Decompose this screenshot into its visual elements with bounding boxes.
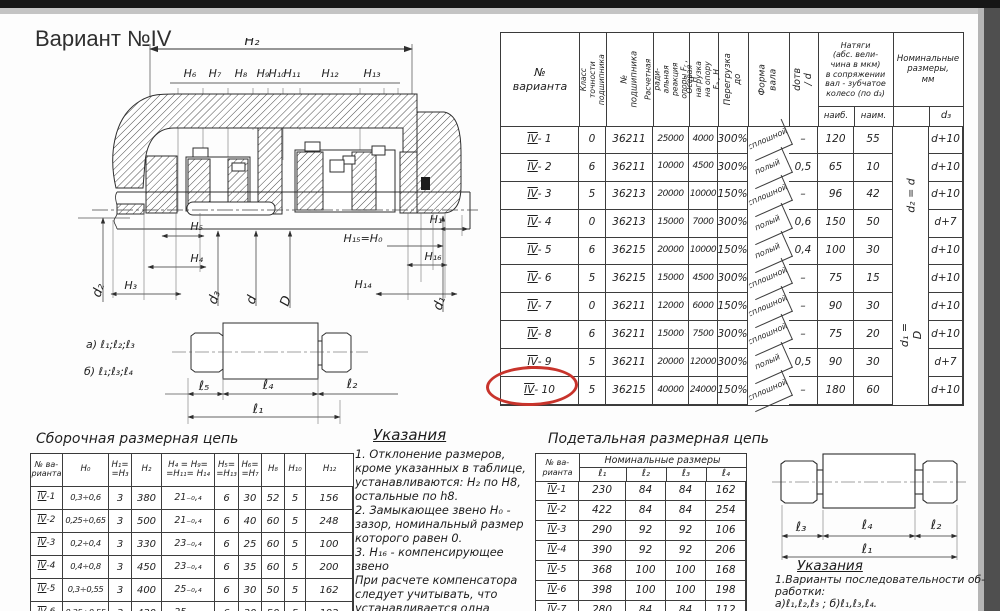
table-cell: d+7	[929, 210, 963, 238]
scan-border-top-gray	[0, 8, 1000, 14]
scan-border-right	[984, 8, 1000, 611]
scan-border-top	[0, 0, 1000, 8]
dim-label-l2: ℓ₂	[346, 377, 358, 392]
table-cell: IV-1	[536, 481, 579, 501]
table-cell: 40000	[653, 377, 689, 405]
table-cell: d+10	[929, 154, 963, 182]
table-cell: IV-4	[31, 556, 63, 579]
table-cell: 330	[132, 533, 162, 556]
table-cell: 5	[285, 487, 306, 510]
dim-label-l4: ℓ₄	[861, 518, 873, 533]
dim-label-h8: H₈	[235, 67, 248, 80]
table-cell: 380	[132, 487, 162, 510]
note-line: 3. Н₁₆ - компенсирующее звено	[355, 546, 535, 574]
table-cell: 7000	[689, 210, 718, 238]
table-cell: 3	[109, 487, 132, 510]
table-cell: 4500	[689, 265, 718, 293]
table-cell: 75	[818, 321, 854, 349]
note-line: следует учитывать, что	[355, 588, 535, 602]
table-cell: 90	[818, 293, 854, 321]
table-cell: 150%	[718, 182, 748, 210]
header-cell: H₆= =H₇	[239, 454, 262, 487]
header-l2: ℓ₂	[626, 467, 667, 482]
table-cell: IV - 8	[501, 321, 579, 349]
detail-table-header: № ва- рианта Номинальные размеры ℓ₁ ℓ₂ ℓ…	[536, 454, 746, 481]
assembly-drawing: H₂ H₆ H₇ H₈ H₉ H₁₀ H₁₁ H₁₂ H₁₃ H₅ H₄ H₃ …	[30, 38, 490, 436]
table-cell: 30	[239, 602, 262, 611]
table-cell: 30	[854, 238, 893, 266]
table-cell: 84	[666, 601, 706, 611]
table-cell: –	[789, 182, 818, 210]
table-cell: 6	[215, 602, 239, 611]
table-cell: 50	[262, 602, 285, 611]
machining-notes: Указания 1.Варианты последовательности о…	[775, 560, 987, 610]
table-cell: d+10	[929, 182, 963, 210]
table-cell: d+10	[929, 238, 963, 266]
table-cell: 50	[854, 210, 893, 238]
table-cell: 5	[285, 533, 306, 556]
table-cell: 100	[626, 581, 666, 601]
table-cell: IV - 2	[501, 154, 579, 182]
note-line: кроме указанных в таблице,	[355, 462, 535, 476]
table-cell: d+10	[929, 377, 963, 405]
table-cell: –	[789, 126, 818, 154]
header-cell: H₁₀	[285, 454, 306, 487]
dim-label-h5: H₅	[190, 220, 203, 233]
table-cell: 90	[818, 349, 854, 377]
table-cell: 10000	[653, 154, 689, 182]
table-cell: 3	[109, 602, 132, 611]
table-cell: 5	[579, 182, 606, 210]
instructions-title: Указания	[373, 428, 535, 442]
dim-label-h6: H₆	[184, 67, 197, 80]
table-cell: 52	[262, 487, 285, 510]
dim-label-l3: ℓ₃	[795, 520, 807, 535]
table-cell: –	[789, 293, 818, 321]
table-cell: 300%	[718, 210, 748, 238]
table-cell: 206	[706, 541, 746, 561]
table-cell: 84	[626, 601, 666, 611]
note-line: устанавливается одна	[355, 602, 535, 611]
table-cell: 162	[306, 579, 353, 602]
table-cell: 254	[706, 501, 746, 521]
table-cell: 192	[306, 602, 353, 611]
dia-label-d2: d₂	[90, 282, 108, 299]
table-cell: 6	[215, 579, 239, 602]
table-cell: 60	[262, 533, 285, 556]
dim-label-l5: ℓ₅	[198, 379, 210, 394]
note-line: остальные по h8.	[355, 490, 535, 504]
assembly-table-title: Сборочная размерная цепь	[36, 431, 238, 447]
table-cell: 36211	[606, 126, 653, 154]
table-cell: 30	[854, 349, 893, 377]
shaft-drawing: ℓ₃ ℓ₄ ℓ₂ ℓ₁	[770, 438, 970, 562]
header-cell: H₀	[63, 454, 109, 487]
table-cell: 15000	[653, 210, 689, 238]
table-cell: 6	[579, 321, 606, 349]
table-cell: 100	[666, 561, 706, 581]
table-cell: IV-2	[31, 510, 63, 533]
table-cell: IV - 1	[501, 126, 579, 154]
dim-label-h2: H₂	[245, 38, 260, 49]
table-cell: d+7	[929, 349, 963, 377]
table-cell: 112	[706, 601, 746, 611]
note-line: которого равен 0.	[355, 532, 535, 546]
table-cell: 5	[579, 265, 606, 293]
scanned-page: Вариант №IV	[0, 0, 1000, 611]
table-cell: 3	[109, 579, 132, 602]
table-cell: 92	[666, 541, 706, 561]
header-axial-load: Осевая нагрузка на опору Fₐ , Н	[689, 33, 719, 127]
header-accuracy-class: Класс точности подшипника	[579, 33, 607, 127]
dim-label-l4: ℓ₄	[262, 378, 274, 393]
table-cell: 156	[306, 487, 353, 510]
header-nominal-sizes: Номинальные размеры	[579, 454, 746, 468]
table-cell: 6	[579, 154, 606, 182]
dim-label-h4: H₄	[190, 252, 203, 265]
detail-table-title: Подетальная размерная цепь	[548, 431, 769, 447]
table-cell: 15000	[653, 321, 689, 349]
table-cell: 25000	[653, 126, 689, 154]
header-naib: наиб.	[818, 106, 855, 127]
table-cell: 0,5	[789, 154, 818, 182]
table-cell: 100	[818, 238, 854, 266]
table-cell: 30	[239, 487, 262, 510]
main-table-header: № варианта Класс точности подшипника № п…	[501, 33, 963, 126]
dim-label-l1: ℓ₁	[252, 402, 264, 417]
table-cell: IV - 4	[501, 210, 579, 238]
header-d3: d₃	[929, 106, 963, 127]
table-cell: 36211	[606, 349, 653, 377]
table-cell: 12000	[689, 349, 718, 377]
table-cell: 75	[818, 265, 854, 293]
table-cell: 0,3÷0,55	[63, 579, 109, 602]
table-cell: 0,25÷0,65	[63, 510, 109, 533]
table-cell: 20000	[653, 182, 689, 210]
table-cell: 36215	[606, 238, 653, 266]
table-cell: 198	[706, 581, 746, 601]
table-cell: 36213	[606, 210, 653, 238]
dia-label-d3: d₃	[206, 289, 224, 306]
table-cell: d+10	[929, 265, 963, 293]
header-cell: H₈	[262, 454, 285, 487]
note-line: устанавливаются: H₂ по H8,	[355, 476, 535, 490]
table-cell: 150%	[718, 377, 748, 405]
table-cell: 0,6	[789, 210, 818, 238]
table-cell: 368	[579, 561, 626, 581]
note-line: 2. Замыкающее звено H₀ -	[355, 504, 535, 518]
table-cell: 300%	[718, 349, 748, 377]
merged-cell-d2-equals-d: d₂ = d	[893, 126, 929, 266]
table-cell: 422	[579, 501, 626, 521]
header-naim: наим.	[854, 106, 894, 127]
table-cell: 15000	[653, 265, 689, 293]
assembly-table-header: № ва- рианта H₀ H₁= =H₃ H₂ H₄ = H₉= =H₁₁…	[31, 454, 353, 487]
table-cell: IV - 7	[501, 293, 579, 321]
table-cell: 150%	[718, 293, 748, 321]
sequence-note-a: а) ℓ₁;ℓ₂;ℓ₃	[86, 338, 135, 351]
table-cell: 10000	[689, 238, 718, 266]
dim-label-h7: H₇	[209, 67, 222, 80]
table-cell: 6000	[689, 293, 718, 321]
table-cell: 92	[626, 541, 666, 561]
main-spec-table: № варианта Класс точности подшипника № п…	[500, 32, 964, 406]
table-cell: IV-3	[31, 533, 63, 556]
header-empty-subcell	[893, 106, 930, 127]
table-cell: 300%	[718, 126, 748, 154]
table-cell: IV-5	[31, 579, 63, 602]
dia-label-D: D	[278, 294, 295, 308]
table-cell: 6	[215, 556, 239, 579]
dim-label-l2: ℓ₂	[930, 518, 942, 533]
dia-label-d: d	[244, 293, 261, 306]
table-cell: 7500	[689, 321, 718, 349]
table-cell: 200	[306, 556, 353, 579]
table-cell: 20000	[653, 349, 689, 377]
table-cell: 84	[666, 501, 706, 521]
table-cell: 5	[285, 510, 306, 533]
dim-label-h13: H₁₃	[363, 67, 381, 80]
table-cell: 20000	[653, 238, 689, 266]
table-cell: 24000	[689, 377, 718, 405]
header-shaft-form: Форма вала	[748, 33, 790, 127]
header-cell: H₂	[132, 454, 162, 487]
table-cell: 84	[666, 481, 706, 501]
table-cell: 390	[579, 541, 626, 561]
table-cell: 150%	[718, 238, 748, 266]
table-cell: 5	[285, 556, 306, 579]
dim-label-h1: H₁	[430, 213, 443, 226]
table-cell: 84	[626, 501, 666, 521]
table-cell: 168	[706, 561, 746, 581]
table-cell: 0,3÷0,6	[63, 487, 109, 510]
table-cell: 5	[285, 579, 306, 602]
table-cell: 0	[579, 126, 606, 154]
merged-cell-d1-equals-D: d₁ = D	[893, 266, 929, 406]
header-l4: ℓ₄	[706, 467, 746, 482]
note-line: При расчете компенсатора	[355, 574, 535, 588]
note-line: а)ℓ₁,ℓ₂,ℓ₃ ; б)ℓ₁,ℓ₃,ℓ₄.	[775, 598, 987, 610]
table-cell: 36211	[606, 321, 653, 349]
table-cell: 5	[285, 602, 306, 611]
table-cell: 4000	[689, 126, 718, 154]
header-dotv-d: dотв / d	[789, 33, 819, 127]
note-line: зазор, номинальный размер	[355, 518, 535, 532]
header-cell: № ва- рианта	[31, 454, 63, 487]
table-cell: 6	[215, 510, 239, 533]
table-cell: 35	[239, 556, 262, 579]
header-nominal-sizes: Номинальные размеры, мм	[893, 33, 963, 107]
sequence-note-b: б) ℓ₁;ℓ₃;ℓ₄	[84, 365, 133, 378]
table-cell: 150	[818, 210, 854, 238]
dim-label-h16: H₁₆	[424, 250, 442, 263]
table-cell: 10000	[689, 182, 718, 210]
detail-chain-table: № ва- рианта Номинальные размеры ℓ₁ ℓ₂ ℓ…	[535, 453, 747, 611]
table-cell: 42	[854, 182, 893, 210]
table-cell: –	[789, 321, 818, 349]
table-cell: 5	[579, 349, 606, 377]
header-interference: Натяги (абс. вели- чина в мкм) в сопряже…	[818, 33, 894, 107]
table-cell: 10	[854, 154, 893, 182]
dim-label-h15-h0: H₁₅=H₀	[344, 232, 384, 245]
table-cell: 0,25÷0,55	[63, 602, 109, 611]
table-cell: 162	[706, 481, 746, 501]
table-cell: IV - 6	[501, 265, 579, 293]
table-cell: 0,2÷0,4	[63, 533, 109, 556]
table-cell: 3	[109, 556, 132, 579]
dim-label-h12: H₁₂	[321, 67, 339, 80]
table-cell: 300%	[718, 265, 748, 293]
table-cell: 6	[579, 238, 606, 266]
table-cell: 21₋₀,₄	[162, 487, 215, 510]
table-cell: 290	[579, 521, 626, 541]
table-cell: 40	[239, 510, 262, 533]
table-cell: 230	[579, 481, 626, 501]
table-cell: IV-2	[536, 501, 579, 521]
table-cell: 430	[132, 602, 162, 611]
header-cell: H₁= =H₃	[109, 454, 132, 487]
table-cell: 23₋₀,₄	[162, 556, 215, 579]
dim-label-h3: H₃	[124, 279, 137, 292]
table-cell: 400	[132, 579, 162, 602]
table-cell: IV-5	[536, 561, 579, 581]
note-line: 1. Отклонение размеров,	[355, 448, 535, 462]
table-cell: 100	[626, 561, 666, 581]
table-cell: 6	[215, 487, 239, 510]
table-cell: d+10	[929, 293, 963, 321]
table-cell: 50	[262, 579, 285, 602]
table-cell: IV - 5	[501, 238, 579, 266]
table-cell: 6	[215, 533, 239, 556]
detail-table-body: IV-12308484162IV-24228484254IV-329092921…	[536, 481, 746, 611]
table-cell: 36215	[606, 265, 653, 293]
assembly-table-body: IV-10,3÷0,6338021₋₀,₄630525156IV-20,25÷0…	[31, 487, 353, 611]
table-cell: 5	[579, 377, 606, 405]
table-cell: 248	[306, 510, 353, 533]
table-cell: 100	[306, 533, 353, 556]
header-variant: № варианта	[501, 33, 580, 127]
table-cell: 25	[239, 533, 262, 556]
header-l1: ℓ₁	[579, 467, 627, 482]
header-l3: ℓ₃	[666, 467, 707, 482]
table-cell: IV-4	[536, 541, 579, 561]
assembly-chain-table: № ва- рианта H₀ H₁= =H₃ H₂ H₄ = H₉= =H₁₁…	[30, 453, 354, 611]
table-cell: 21₋₀,₄	[162, 510, 215, 533]
table-cell: 36211	[606, 293, 653, 321]
table-cell: 60	[262, 556, 285, 579]
table-cell: IV-6	[31, 602, 63, 611]
header-cell: H₄ = H₉= =H₁₁= H₁₄	[162, 454, 215, 487]
table-cell: 15	[854, 265, 893, 293]
table-cell: 25₋₀,₄	[162, 602, 215, 611]
table-cell: d+10	[929, 126, 963, 154]
table-cell: 84	[626, 481, 666, 501]
table-cell: 25₋₀,₄	[162, 579, 215, 602]
table-cell: 60	[854, 377, 893, 405]
dia-label-d1: d₁	[431, 295, 449, 312]
dim-label-h14: H₁₄	[354, 278, 372, 291]
table-cell: 3	[109, 533, 132, 556]
table-cell: 0,4	[789, 238, 818, 266]
table-cell: IV-6	[536, 581, 579, 601]
header-cell: H₁₂	[306, 454, 353, 487]
table-cell: IV-3	[536, 521, 579, 541]
dim-label-l1: ℓ₁	[861, 542, 873, 557]
header-overload: Перегрузка до	[718, 33, 749, 127]
dim-label-h11: H₁₁	[283, 67, 300, 80]
table-cell: –	[789, 265, 818, 293]
table-cell: 0	[579, 293, 606, 321]
table-cell: 100	[666, 581, 706, 601]
table-cell: 0	[579, 210, 606, 238]
table-cell: 30	[854, 293, 893, 321]
table-cell: 300%	[718, 154, 748, 182]
table-cell: 92	[666, 521, 706, 541]
table-cell: –	[789, 377, 818, 405]
table-cell: 36213	[606, 182, 653, 210]
table-cell: 60	[262, 510, 285, 533]
table-cell: 0,4÷0,8	[63, 556, 109, 579]
table-cell: 450	[132, 556, 162, 579]
table-cell: 65	[818, 154, 854, 182]
instructions: Указания 1. Отклонение размеров, кроме у…	[355, 428, 535, 611]
machining-notes-title: Указания	[797, 560, 987, 572]
header-variant: № ва- рианта	[536, 454, 580, 482]
table-cell: IV-1	[31, 487, 63, 510]
table-cell: 20	[854, 321, 893, 349]
table-cell: IV - 3	[501, 182, 579, 210]
table-cell: 3	[109, 510, 132, 533]
table-cell: d+10	[929, 321, 963, 349]
table-cell: 23₋₀,₄	[162, 533, 215, 556]
table-cell: 398	[579, 581, 626, 601]
table-cell: 30	[239, 579, 262, 602]
table-cell: 36211	[606, 154, 653, 182]
table-cell: 96	[818, 182, 854, 210]
table-cell: 92	[626, 521, 666, 541]
table-cell: 180	[818, 377, 854, 405]
table-cell: 4500	[689, 154, 718, 182]
table-cell: 280	[579, 601, 626, 611]
table-cell: IV-7	[536, 601, 579, 611]
table-cell: 120	[818, 126, 854, 154]
table-cell: 55	[854, 126, 893, 154]
header-cell: H₅= =H₁₃	[215, 454, 239, 487]
table-cell: 500	[132, 510, 162, 533]
table-cell: 106	[706, 521, 746, 541]
table-cell: 300%	[718, 321, 748, 349]
table-cell: 0,5	[789, 349, 818, 377]
table-cell: 36215	[606, 377, 653, 405]
table-cell: 12000	[653, 293, 689, 321]
